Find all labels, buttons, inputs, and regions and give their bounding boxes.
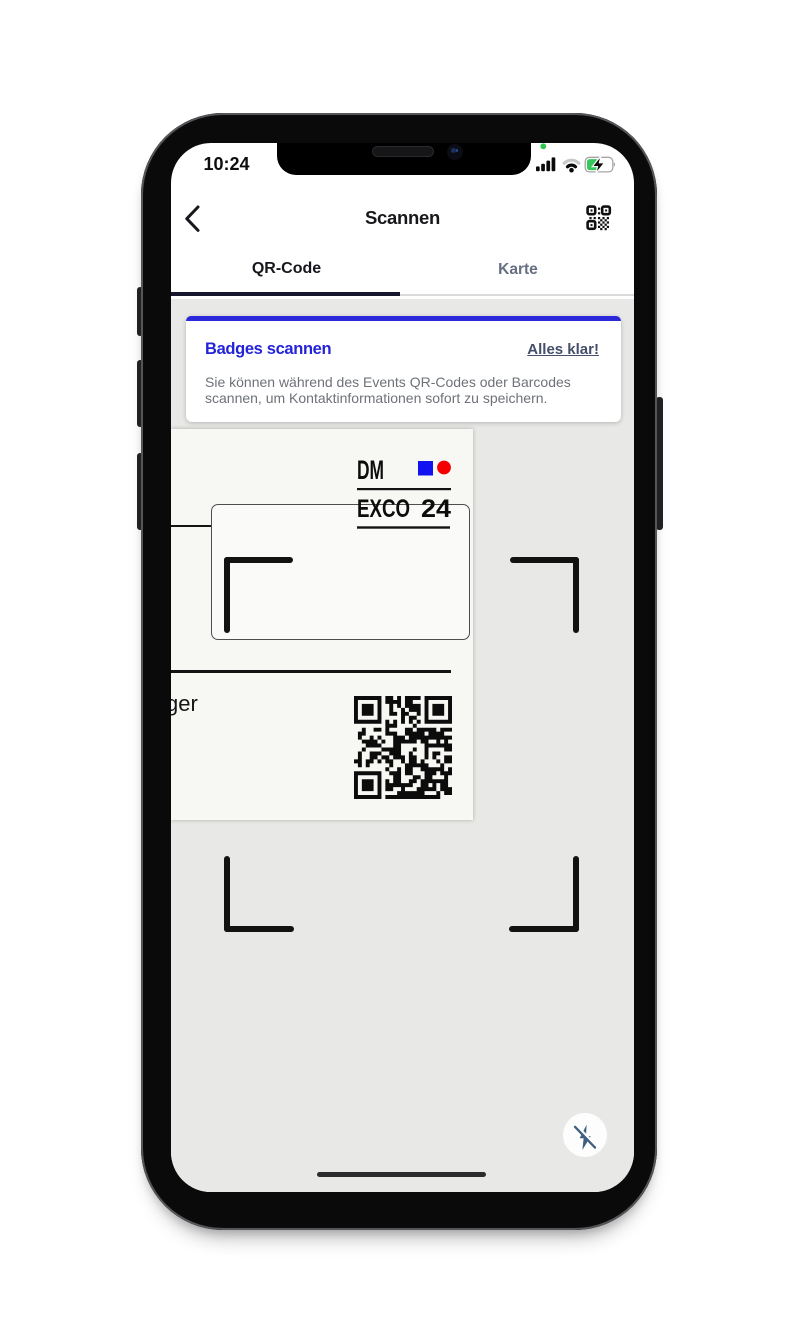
svg-text:DM: DM bbox=[357, 455, 384, 485]
svg-text:EXCO: EXCO bbox=[357, 495, 410, 523]
svg-text:24: 24 bbox=[421, 495, 451, 523]
